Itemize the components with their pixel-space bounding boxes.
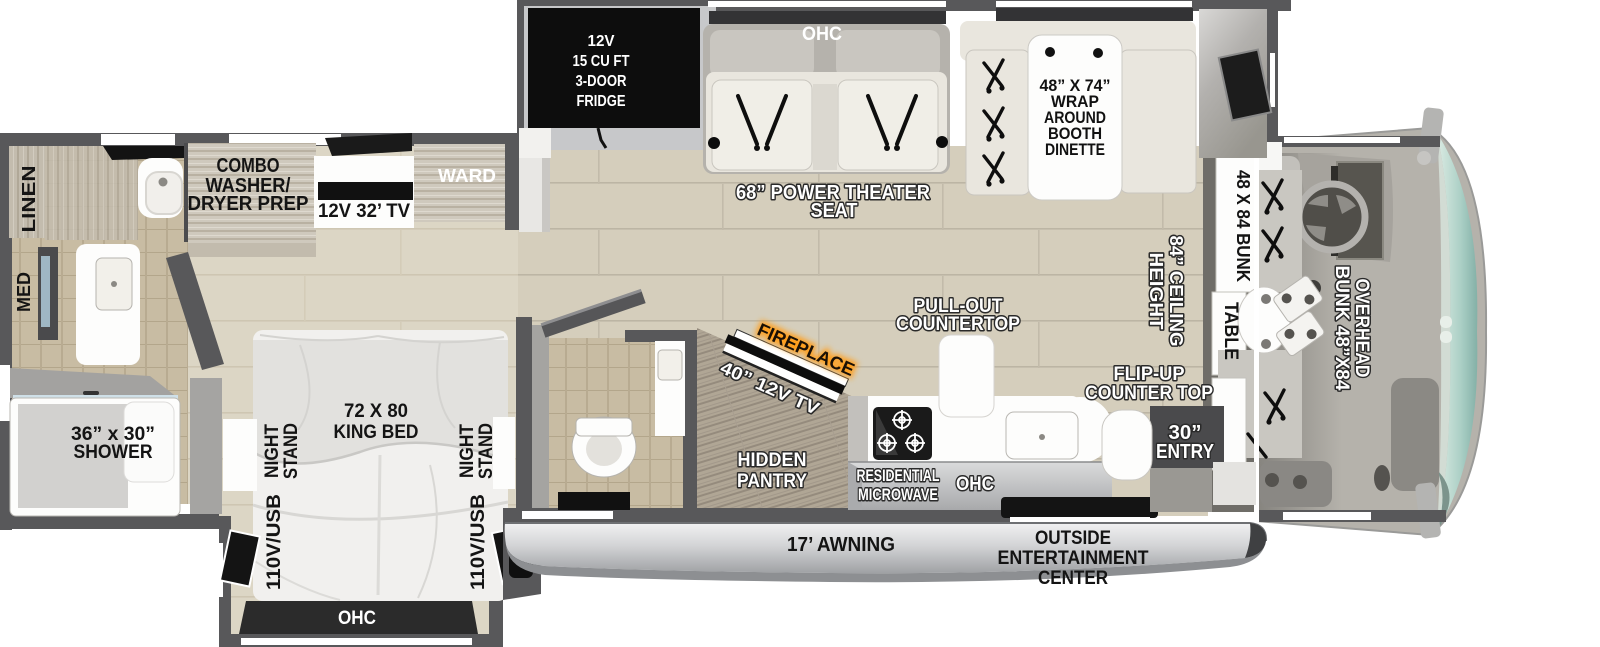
svg-text:DINETTE: DINETTE — [1045, 140, 1105, 159]
svg-text:17’ AWNING: 17’ AWNING — [787, 534, 895, 556]
svg-text:ENTERTAINMENT: ENTERTAINMENT — [998, 547, 1149, 569]
svg-text:LINEN: LINEN — [19, 166, 39, 233]
svg-text:84” CEILING: 84” CEILING — [1166, 236, 1186, 347]
svg-text:CENTER: CENTER — [1038, 567, 1108, 589]
svg-text:STAND: STAND — [281, 423, 302, 479]
svg-text:FRIDGE: FRIDGE — [577, 93, 626, 110]
svg-text:FLIP-UP: FLIP-UP — [1114, 364, 1185, 385]
svg-text:COUNTER TOP: COUNTER TOP — [1085, 383, 1213, 404]
svg-text:HEIGHT: HEIGHT — [1146, 253, 1166, 330]
svg-text:COUNTERTOP: COUNTERTOP — [896, 314, 1020, 335]
svg-text:TABLE: TABLE — [1220, 302, 1241, 360]
svg-text:72 X 80: 72 X 80 — [344, 401, 408, 422]
svg-text:PANTRY: PANTRY — [737, 471, 807, 492]
svg-text:12V: 12V — [588, 33, 615, 50]
svg-text:OHC: OHC — [956, 474, 994, 495]
svg-text:15 CU FT: 15 CU FT — [573, 53, 630, 70]
svg-text:OHC: OHC — [338, 608, 376, 629]
svg-text:KING BED: KING BED — [334, 422, 419, 443]
svg-text:WARD: WARD — [438, 166, 496, 186]
svg-text:ENTRY: ENTRY — [1156, 441, 1215, 463]
svg-text:NIGHT: NIGHT — [457, 424, 478, 478]
svg-text:OVERHEAD: OVERHEAD — [1351, 279, 1372, 378]
svg-text:OUTSIDE: OUTSIDE — [1035, 527, 1111, 549]
svg-text:110V/USB: 110V/USB — [264, 494, 285, 590]
svg-text:3-DOOR: 3-DOOR — [576, 73, 627, 90]
svg-text:MED: MED — [14, 272, 34, 312]
svg-text:SHOWER: SHOWER — [74, 442, 153, 463]
svg-text:110V/USB: 110V/USB — [468, 494, 489, 590]
svg-text:RESIDENTIAL: RESIDENTIAL — [857, 466, 940, 485]
svg-text:HIDDEN: HIDDEN — [738, 450, 807, 471]
svg-text:12V 32’ TV: 12V 32’ TV — [318, 201, 410, 222]
svg-text:48 X 84 BUNK: 48 X 84 BUNK — [1233, 170, 1253, 282]
svg-text:STAND: STAND — [476, 423, 497, 479]
svg-text:COMBO: COMBO — [217, 155, 280, 177]
svg-text:OHC: OHC — [802, 24, 842, 45]
svg-text:NIGHT: NIGHT — [262, 424, 283, 478]
svg-text:DRYER PREP: DRYER PREP — [188, 193, 309, 215]
svg-text:MICROWAVE: MICROWAVE — [858, 485, 938, 504]
svg-text:SEAT: SEAT — [811, 200, 858, 222]
svg-text:BUNK 48”X84: BUNK 48”X84 — [1331, 266, 1352, 391]
